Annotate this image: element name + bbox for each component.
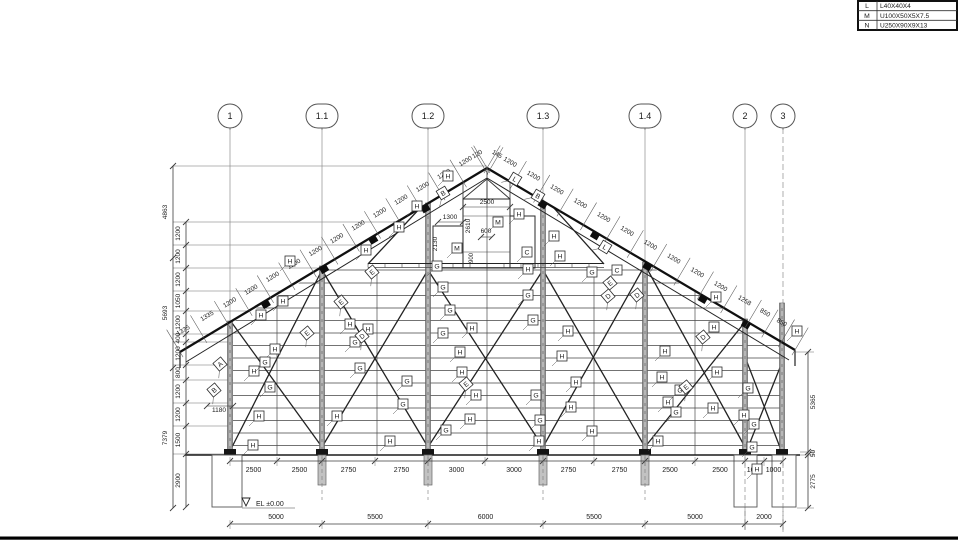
base-plate: [224, 449, 236, 455]
dimension-text: 2000: [756, 514, 772, 521]
dimension-text: 1200: [175, 249, 182, 264]
tag-letter: H: [590, 429, 595, 436]
tag-letter: H: [397, 225, 402, 232]
tag-letter: H: [474, 393, 479, 400]
tag-letter: H: [252, 369, 257, 376]
grid-bubble-label: 1: [227, 111, 232, 121]
tag-letter: G: [262, 360, 267, 367]
monitor-dim-1300: 1300: [443, 214, 458, 221]
dimension-text: 3000: [506, 467, 522, 474]
cad-viewport: 1335133512001200120012001200120012001200…: [0, 0, 960, 540]
legend-value: L40X40X4: [880, 3, 911, 10]
tag-letter: H: [288, 259, 293, 266]
dimension-text: 1200: [175, 346, 182, 361]
tag-letter: H: [755, 467, 760, 474]
dimension-text: 1200: [175, 226, 182, 241]
dimension-text: 5365: [810, 394, 817, 409]
monitor-dim-600: 600: [481, 228, 492, 235]
tag-letter: H: [552, 234, 557, 241]
tag-letter: H: [712, 325, 717, 332]
tag-letter: G: [400, 402, 405, 409]
dimension-text: 2900: [175, 473, 182, 488]
tag-letter: H: [348, 322, 353, 329]
sheet-border-bottom: [0, 537, 958, 540]
tag-letter: M: [495, 220, 501, 227]
dimension-text: 800: [175, 367, 182, 378]
tag-letter: G: [447, 308, 452, 315]
tag-letter: H: [415, 204, 420, 211]
tag-letter: G: [352, 340, 357, 347]
tag-letter: H: [711, 406, 716, 413]
tag-letter: H: [574, 380, 579, 387]
tag-letter: H: [560, 354, 565, 361]
dimension-text: 1500: [175, 432, 182, 447]
dimension-text: 2500: [712, 467, 728, 474]
dimension-text: 1200: [175, 272, 182, 287]
grid-bubble-label: 2: [742, 111, 747, 121]
legend-value: U100X50X5X7.5: [880, 13, 929, 20]
tag-letter: C: [615, 268, 620, 275]
tag-letter: H: [663, 349, 668, 356]
tag-letter: H: [335, 414, 340, 421]
legend-value: U250X90X9X13: [880, 22, 928, 29]
tag-letter: H: [715, 370, 720, 377]
tag-letter: H: [446, 174, 451, 181]
tag-letter: H: [366, 327, 371, 334]
tag-letter: G: [745, 386, 750, 393]
tag-letter: G: [440, 331, 445, 338]
tag-letter: C: [525, 250, 530, 257]
dimension-text: 5693: [162, 305, 169, 320]
dimension-text: 1200: [175, 384, 182, 399]
dimension-text: 2750: [612, 467, 628, 474]
legend-key: L: [865, 3, 869, 10]
grid-bubble-label: 1.2: [422, 111, 435, 121]
tag-letter: G: [434, 264, 439, 271]
dimension-text: 3000: [449, 467, 465, 474]
dimension-text: 2500: [662, 467, 678, 474]
tag-letter: H: [388, 439, 393, 446]
dimension-text: 1200: [175, 407, 182, 422]
tag-letter: H: [569, 405, 574, 412]
dimension-text: 400: [175, 332, 182, 343]
dimension-text: 5500: [367, 514, 383, 521]
tag-letter: G: [751, 422, 756, 429]
tag-letter: H: [795, 329, 800, 336]
legend-key: M: [864, 13, 870, 20]
tag-letter: H: [257, 414, 262, 421]
tag-letter: H: [660, 375, 665, 382]
column: [426, 203, 431, 455]
tag-letter: G: [267, 385, 272, 392]
monitor-dim-2500: 2500: [480, 199, 495, 206]
tag-letter: G: [533, 393, 538, 400]
dimension-text: 4863: [162, 204, 169, 219]
dimension-text: 2500: [292, 467, 308, 474]
tag-letter: G: [357, 366, 362, 373]
monitor-dim-2130: 2130: [432, 236, 439, 251]
dimension-text: 2750: [341, 467, 357, 474]
tag-letter: G: [440, 285, 445, 292]
grid-bubble-label: 1.1: [316, 111, 329, 121]
tag-letter: G: [404, 379, 409, 386]
dimension-text: 2750: [561, 467, 577, 474]
tag-letter: G: [589, 270, 594, 277]
tag-letter: H: [558, 254, 563, 261]
tag-letter: H: [742, 413, 747, 420]
tag-letter: H: [537, 439, 542, 446]
tag-letter: G: [443, 428, 448, 435]
tag-letter: H: [458, 350, 463, 357]
dimension-text: 7379: [162, 430, 169, 445]
footing: [734, 455, 757, 507]
tag-letter: H: [714, 295, 719, 302]
tag-letter: G: [530, 318, 535, 325]
base-plate: [422, 449, 434, 455]
dimension-text: 2775: [810, 474, 817, 489]
tag-letter: G: [525, 293, 530, 300]
dimension-text: 50: [810, 450, 817, 458]
footing: [772, 455, 796, 507]
tag-letter: H: [364, 248, 369, 255]
base-plate: [316, 449, 328, 455]
monitor-dim-2610: 2610: [465, 218, 472, 233]
tag-letter: H: [259, 313, 264, 320]
dimension-text: 1000: [766, 467, 782, 474]
tag-letter: G: [537, 418, 542, 425]
tag-letter: H: [526, 267, 531, 274]
dimension-text: 2500: [246, 467, 262, 474]
elevation-text: EL ±0.00: [256, 501, 284, 508]
grid-bubble-label: 3: [780, 111, 785, 121]
dimension-text: 1200: [175, 315, 182, 330]
dimension-text-1180: 1180: [212, 407, 226, 414]
tag-letter: H: [273, 347, 278, 354]
dimension-text: 5000: [687, 514, 703, 521]
tag-letter: G: [673, 410, 678, 417]
tag-letter: H: [468, 417, 473, 424]
grid-bubble-label: 1.4: [639, 111, 652, 121]
tag-letter: H: [460, 370, 465, 377]
monitor-dim-900: 900: [469, 252, 475, 263]
footing: [212, 455, 242, 507]
dimension-text: 1050: [175, 293, 182, 308]
dimension-text: 5000: [268, 514, 284, 521]
dimension-text: 6000: [478, 514, 494, 521]
tag-letter: H: [281, 299, 286, 306]
dimension-text: 2750: [394, 467, 410, 474]
truss-elevation-svg: 1335133512001200120012001200120012001200…: [0, 0, 960, 540]
tag-letter: H: [470, 326, 475, 333]
dimension-text: 5500: [586, 514, 602, 521]
tag-letter: M: [454, 246, 460, 253]
tag-letter: H: [517, 212, 522, 219]
legend-key: N: [865, 22, 870, 29]
base-plate: [776, 449, 788, 455]
tag-letter: H: [656, 439, 661, 446]
base-plate: [537, 449, 549, 455]
tag-letter: G: [749, 445, 754, 452]
tag-letter: H: [666, 400, 671, 407]
tag-letter: H: [566, 329, 571, 336]
grid-bubble-label: 1.3: [537, 111, 550, 121]
tag-letter: H: [251, 443, 256, 450]
